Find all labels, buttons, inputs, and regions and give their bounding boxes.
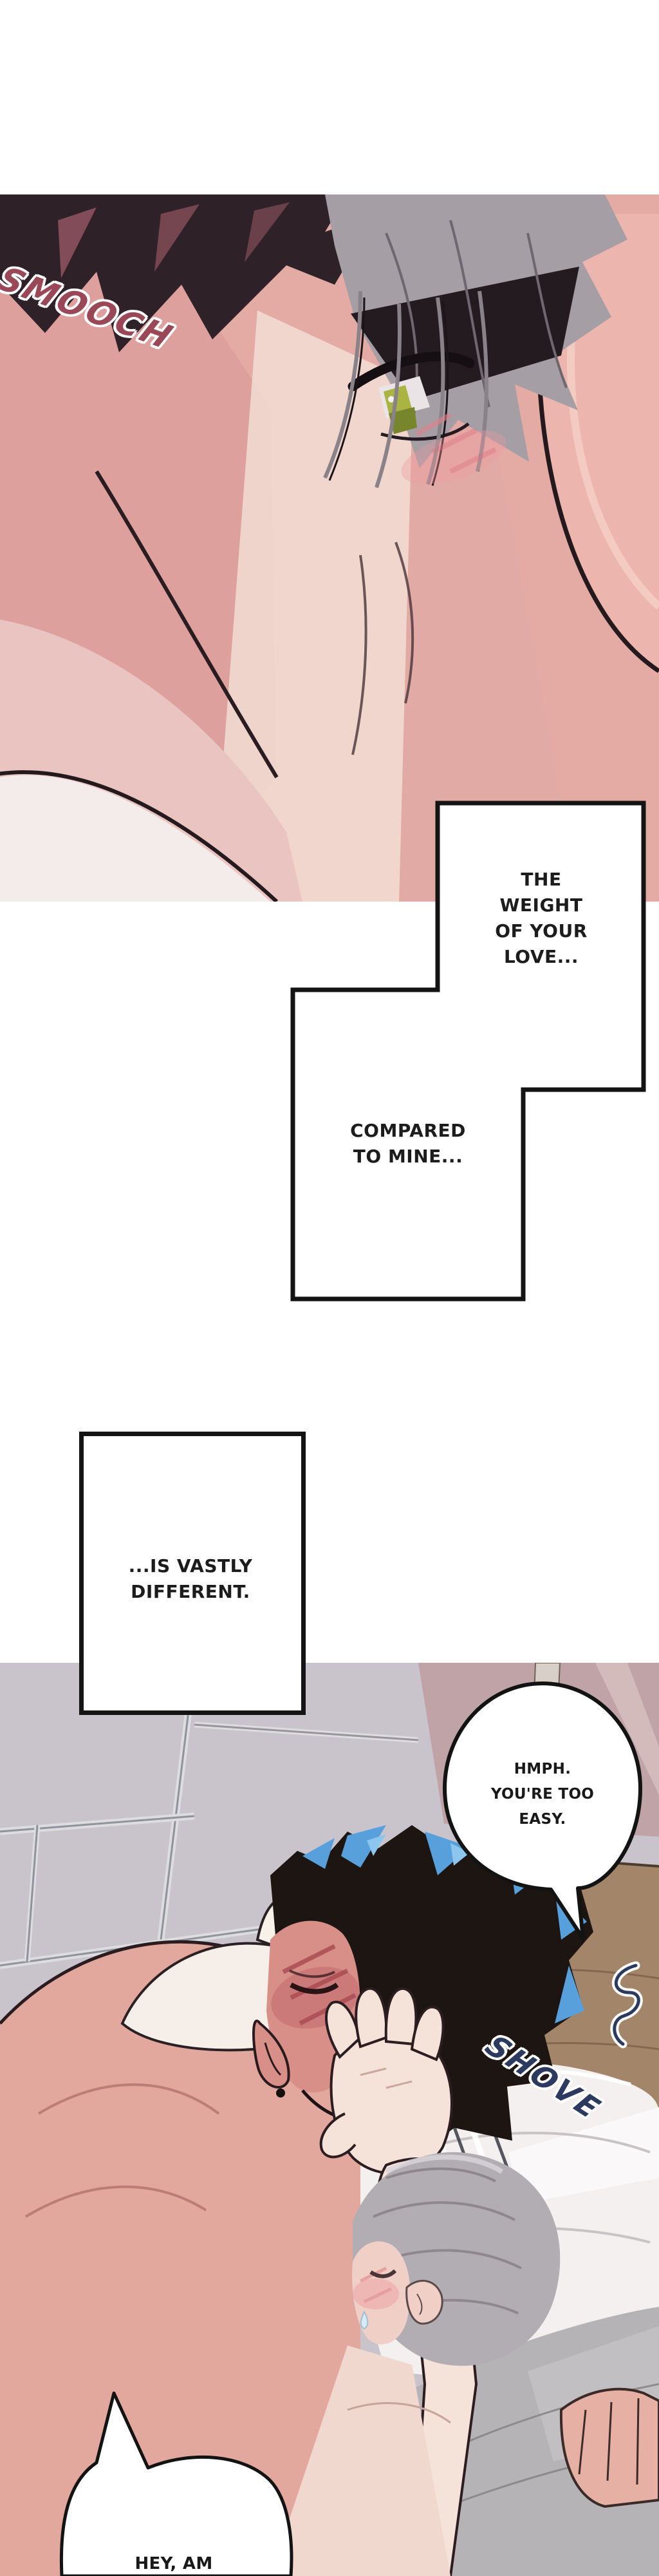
- caption-weight: THE WEIGHT OF YOUR LOVE...: [443, 867, 640, 970]
- bubble-line: YOU'RE TOO: [459, 1782, 626, 1807]
- bubble-line: HMPH.: [459, 1757, 626, 1782]
- caption-line: OF YOUR: [443, 918, 640, 944]
- bubble-hmph-text: HMPH. YOU'RE TOO EASY.: [459, 1757, 626, 1832]
- caption-line: COMPARED: [296, 1118, 520, 1144]
- caption-line: ...IS VASTLY: [84, 1553, 297, 1579]
- caption-line: WEIGHT: [443, 893, 640, 918]
- caption-compared: COMPARED TO MINE...: [296, 1118, 520, 1170]
- caption-line: TO MINE...: [296, 1144, 520, 1170]
- bubble-hey-text: HEY, AM: [97, 2552, 251, 2576]
- caption-different: ...IS VASTLY DIFFERENT.: [84, 1553, 297, 1605]
- bubble-line: HEY, AM: [97, 2552, 251, 2576]
- caption-line: LOVE...: [443, 944, 640, 970]
- caption-line: DIFFERENT.: [84, 1579, 297, 1605]
- earring: [276, 2088, 285, 2098]
- bubble-line: EASY.: [459, 1807, 626, 1832]
- caption-line: THE: [443, 867, 640, 893]
- comic-page: SMOOCH THE WEIGHT OF YOUR LOVE... COMPAR…: [0, 0, 659, 2576]
